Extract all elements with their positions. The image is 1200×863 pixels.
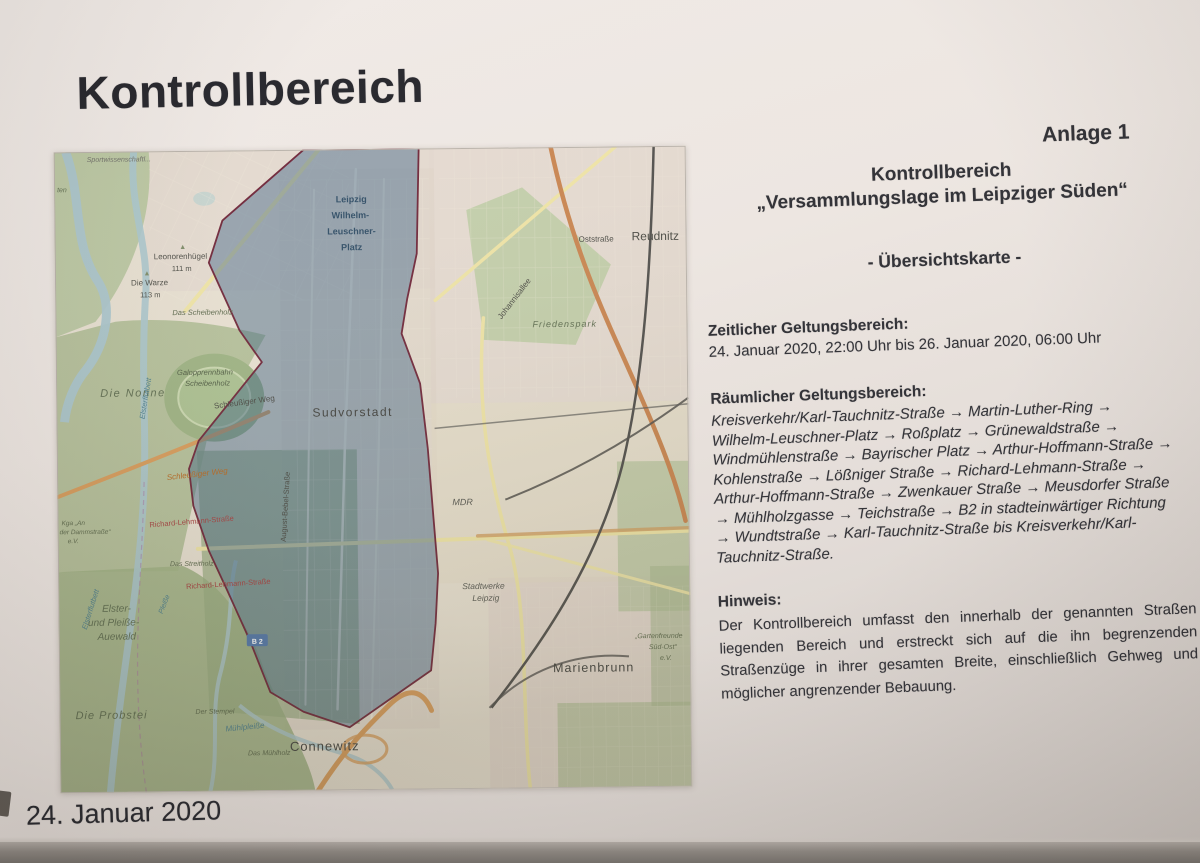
info-column: Kontrollbereich „Versammlungslage im Lei…: [702, 152, 1199, 705]
table-edge: [0, 842, 1200, 863]
map-svg: B 2 Sportwissenschaftl...tenLeipzigWilhe…: [54, 146, 693, 794]
map-shade-overlay: [54, 146, 693, 794]
photo-background: Kontrollbereich Anlage 1: [0, 0, 1200, 863]
paper-edge-mark: [0, 790, 11, 817]
info-heading-line3: - Übersichtskarte -: [705, 240, 1183, 279]
overview-map: B 2 Sportwissenschaftl...tenLeipzigWilhe…: [54, 146, 693, 794]
footer-date: 24. Januar 2020: [26, 795, 222, 831]
hinweis-text: Der Kontrollbereich umfasst den innerhal…: [718, 598, 1199, 705]
annex-label: Anlage 1: [1042, 120, 1130, 147]
page-title: Kontrollbereich: [76, 59, 424, 120]
raeumlich-route: Kreisverkehr/Karl-Tauchnitz-Straße → Mar…: [711, 395, 1178, 568]
